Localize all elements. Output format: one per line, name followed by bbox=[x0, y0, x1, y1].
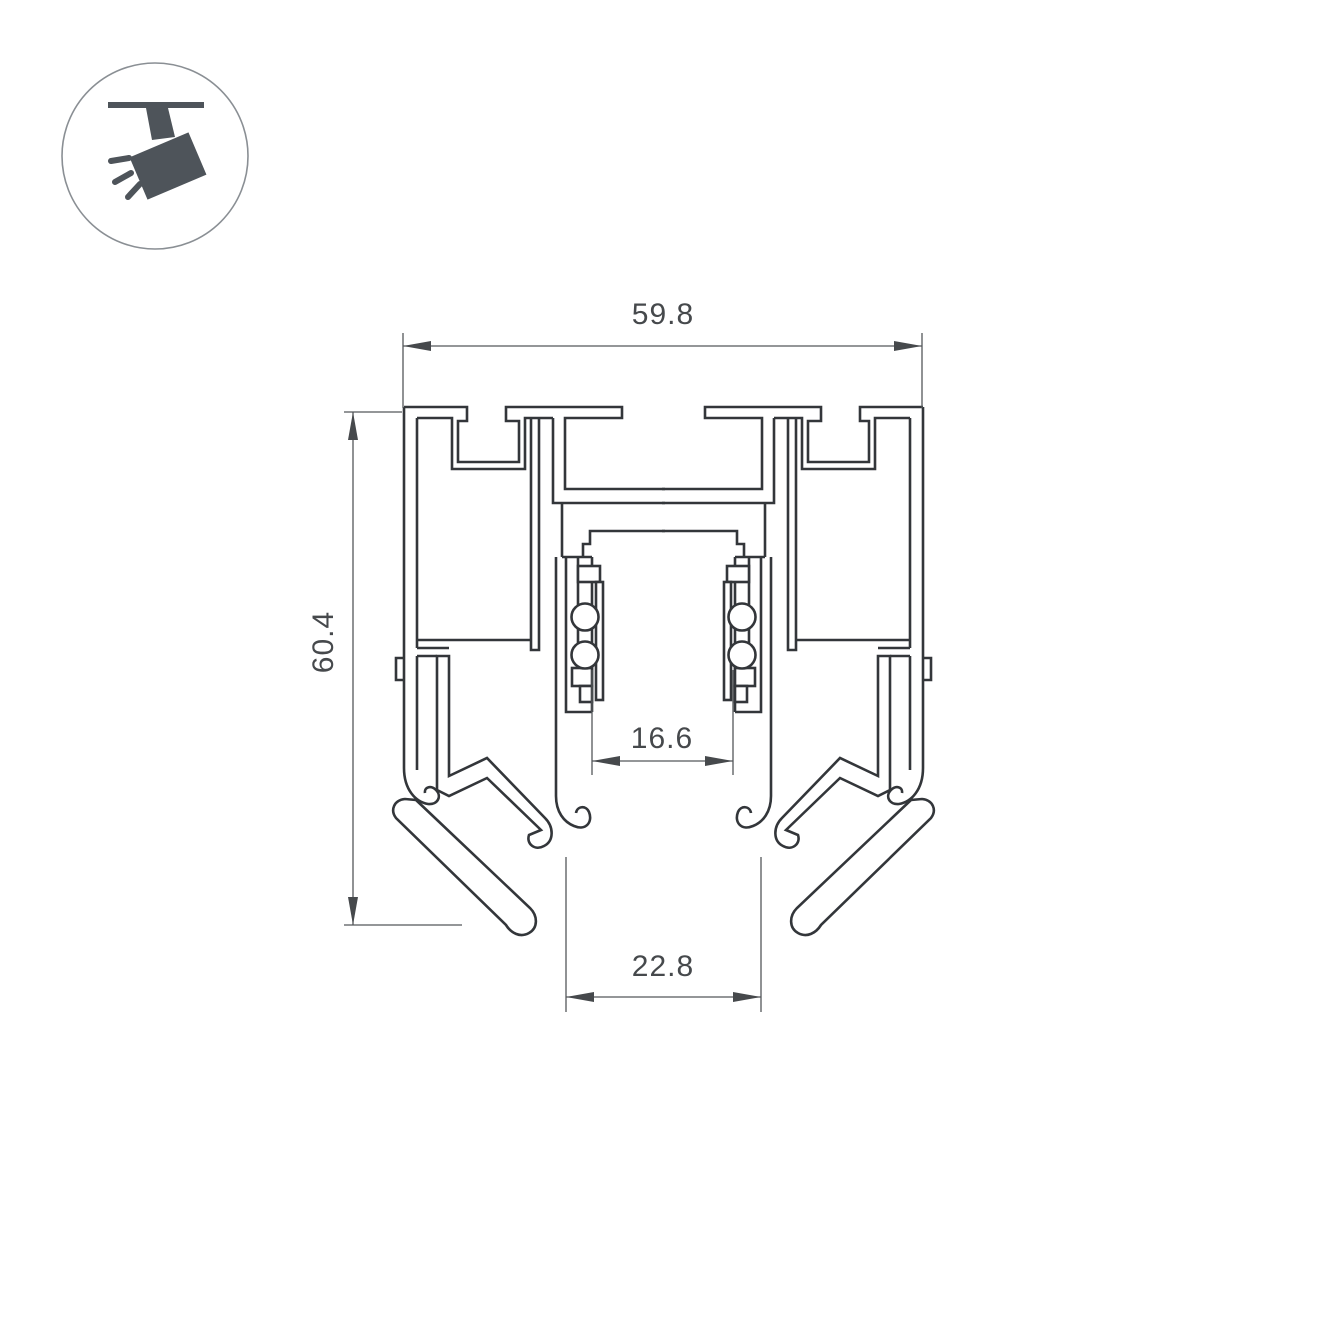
dimension-label-bottom: 22.8 bbox=[632, 950, 694, 983]
conductor-housing-stub bbox=[580, 686, 592, 702]
arrow-right bbox=[705, 756, 733, 766]
dimension-inner-width: 16.6 bbox=[592, 670, 733, 775]
conductor-housing-plate bbox=[596, 582, 603, 700]
track-spotlight-icon bbox=[62, 63, 248, 249]
drawing-canvas: 59.8 60.4 16.6 22.8 bbox=[0, 0, 1331, 1331]
conductor-housing-bottom bbox=[572, 668, 592, 686]
conductor-housing-top bbox=[578, 566, 600, 582]
dimension-label-top: 59.8 bbox=[632, 298, 694, 331]
arrow-right bbox=[733, 992, 761, 1002]
arrow-right bbox=[894, 341, 922, 351]
dimension-label-inner: 16.6 bbox=[631, 722, 693, 755]
arrow-down bbox=[348, 897, 358, 925]
profile-right-half bbox=[662, 407, 934, 935]
arrow-up bbox=[348, 412, 358, 440]
dimension-bottom-width: 22.8 bbox=[566, 857, 761, 1012]
conductor-contact-upper bbox=[572, 604, 599, 631]
arrow-left bbox=[566, 992, 594, 1002]
profile-left-half bbox=[393, 407, 665, 935]
dimension-label-left: 60.4 bbox=[307, 611, 340, 673]
arrow-left bbox=[403, 341, 431, 351]
conductor-contact-lower bbox=[572, 642, 599, 669]
arrow-left bbox=[592, 756, 620, 766]
profile-technical-drawing: 59.8 60.4 16.6 22.8 bbox=[0, 0, 1331, 1331]
dimension-top-width: 59.8 bbox=[403, 298, 922, 408]
icon-ceiling-bar bbox=[108, 102, 204, 108]
